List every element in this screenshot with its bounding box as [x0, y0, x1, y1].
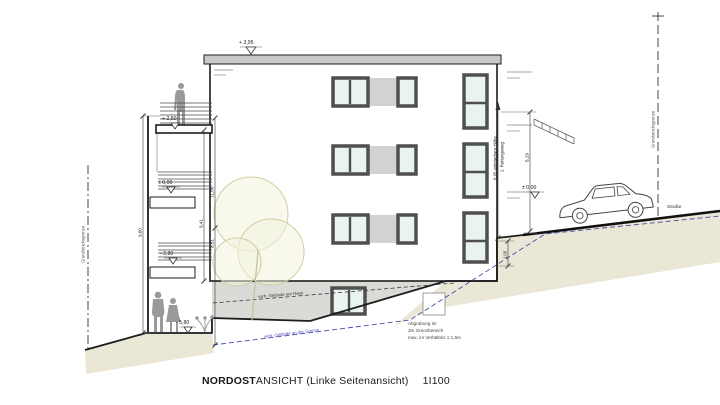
- window-tall: [464, 213, 487, 262]
- dim-right-step: 1,00: [503, 250, 508, 259]
- dim-mid-left: 9,41: [199, 219, 204, 228]
- window-narrow: [398, 78, 416, 106]
- level-minus-280: - 2,80: [160, 251, 173, 257]
- dim-outer-left: 9,60: [138, 228, 143, 237]
- roof-slab: [204, 55, 501, 64]
- window-tall: [464, 75, 487, 128]
- tree-crown: [213, 238, 261, 286]
- drawing-title: NORDOSTANSICHT (Linke Seitenansicht)1I10…: [202, 375, 450, 387]
- facade-panel: [369, 146, 397, 174]
- facade-panel: [369, 78, 397, 106]
- street-label: Straße: [667, 204, 682, 210]
- excavation-note-line2: 3m Grenzbereich: [408, 328, 444, 333]
- window-narrow: [398, 146, 416, 174]
- level-minus-580: - 5,80: [176, 320, 189, 326]
- boundary-label-right: Grundstücksgrenze: [651, 110, 656, 148]
- drawing-canvas: vorh. Gelände am Haus vorh. Gelände an d…: [0, 0, 720, 405]
- landing-window: [150, 267, 195, 278]
- dim-low-left: 8,51: [210, 239, 215, 248]
- boundary-label-left: Grundstücksgrenze: [81, 225, 86, 263]
- terrain-left-slope: [85, 333, 214, 374]
- car: [557, 180, 654, 225]
- excavation-note: Abgrabung im 3m Grenzbereich max. im Ver…: [408, 321, 461, 340]
- title-scale: 1I100: [423, 375, 450, 387]
- level-zero-right: ± 0,00: [522, 185, 536, 191]
- excavation-note-line1: Abgrabung im: [408, 321, 437, 326]
- facade-marks: [507, 72, 532, 198]
- level-balcony: + 2,50: [162, 116, 177, 122]
- excavation-note-line3: max. im Verhältnis 1:1,5m: [408, 335, 461, 340]
- person-woman-silhouette: [166, 298, 181, 332]
- dim-total-left: 11,56: [210, 186, 215, 198]
- title-view-suffix: ANSICHT (Linke Seitenansicht): [256, 375, 409, 387]
- level-roof: + 3,95: [239, 40, 254, 46]
- window-tall: [464, 144, 487, 197]
- grade-boundary-label: vorh. Gelände an der Grenze: [264, 327, 320, 339]
- dim-right-total: 8,29: [525, 153, 530, 162]
- level-zero-left: ± 0,00: [158, 180, 172, 186]
- balcony-slab: [156, 125, 212, 133]
- window-narrow: [398, 215, 416, 243]
- title-view-name: NORDOST: [202, 375, 256, 387]
- facade-panel: [369, 215, 397, 243]
- dim-rescue-height: 6,95 anleiterbare Höhe: [493, 136, 498, 180]
- landing-window: [150, 197, 195, 208]
- elevation-drawing: vorh. Gelände am Haus vorh. Gelände an d…: [0, 0, 720, 405]
- plant: [196, 316, 214, 332]
- lightwell: [423, 293, 445, 315]
- dim-rescue-label: 2. Rettungsweg: [500, 142, 505, 172]
- entrance-canopy: [534, 119, 574, 144]
- person-man-silhouette: [152, 292, 164, 332]
